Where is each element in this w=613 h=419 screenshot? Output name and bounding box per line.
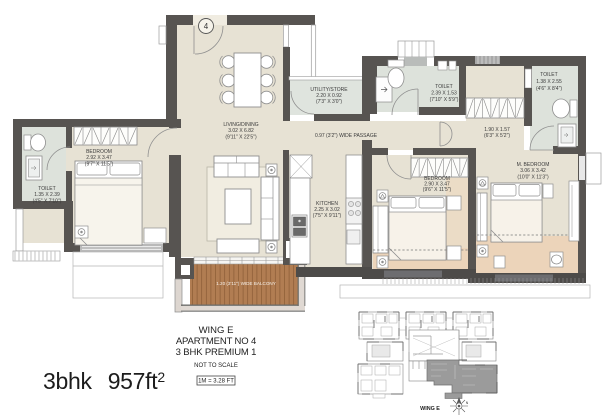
svg-text:(9'11" X 22'5"): (9'11" X 22'5")	[225, 134, 257, 140]
svg-text:(9'6" X 11'5"): (9'6" X 11'5")	[423, 187, 452, 193]
svg-text:M. BEDROOM: M. BEDROOM	[517, 162, 550, 168]
svg-text:(6'3" X 5'2"): (6'3" X 5'2")	[484, 133, 510, 139]
svg-text:(4'6" X 8'4"): (4'6" X 8'4")	[536, 86, 562, 92]
svg-text:1.20 (3'11") WIDE BALCONY: 1.20 (3'11") WIDE BALCONY	[216, 281, 276, 286]
svg-text:(7'5" X 9'11"): (7'5" X 9'11")	[313, 213, 342, 219]
svg-text:NOT TO SCALE: NOT TO SCALE	[194, 363, 238, 369]
svg-text:2.92 X 3.47: 2.92 X 3.47	[86, 155, 112, 161]
svg-text:LIVING/DINING: LIVING/DINING	[223, 122, 258, 128]
svg-text:(9'7" X 11'5"): (9'7" X 11'5")	[85, 161, 114, 167]
svg-text:(7'3" X 3'0"): (7'3" X 3'0")	[316, 99, 342, 105]
svg-text:1.90 X 1.57: 1.90 X 1.57	[484, 127, 510, 133]
svg-text:1.35 X 2.39: 1.35 X 2.39	[34, 192, 60, 198]
svg-text:2.39 X 1.53: 2.39 X 1.53	[431, 91, 457, 97]
svg-text:1.38 X 2.55: 1.38 X 2.55	[536, 79, 562, 85]
svg-text:4: 4	[204, 22, 209, 31]
svg-text:APARTMENT NO 4: APARTMENT NO 4	[176, 336, 256, 347]
svg-text:1M = 3.28 FT: 1M = 3.28 FT	[198, 379, 234, 385]
svg-text:0.97 (3'2") WIDE PASSAGE: 0.97 (3'2") WIDE PASSAGE	[315, 133, 378, 139]
svg-text:TOILET: TOILET	[435, 84, 452, 90]
svg-text:TOILET: TOILET	[540, 72, 557, 78]
svg-text:3.06 X 3.42: 3.06 X 3.42	[520, 168, 546, 174]
svg-text:3 BHK PREMIUM 1: 3 BHK PREMIUM 1	[176, 347, 257, 358]
svg-text:TOILET: TOILET	[38, 186, 55, 192]
svg-text:(10'0" X 11'3"): (10'0" X 11'3")	[517, 174, 549, 180]
svg-text:WING E: WING E	[199, 325, 234, 336]
svg-text:WING E: WING E	[420, 406, 440, 412]
svg-text:3.02 X 6.82: 3.02 X 6.82	[228, 128, 254, 134]
svg-text:(7'10" X 5'9"): (7'10" X 5'9")	[430, 97, 459, 103]
svg-text:BEDROOM: BEDROOM	[86, 149, 112, 155]
svg-text:(4'5" X 7'10"): (4'5" X 7'10")	[33, 198, 62, 204]
